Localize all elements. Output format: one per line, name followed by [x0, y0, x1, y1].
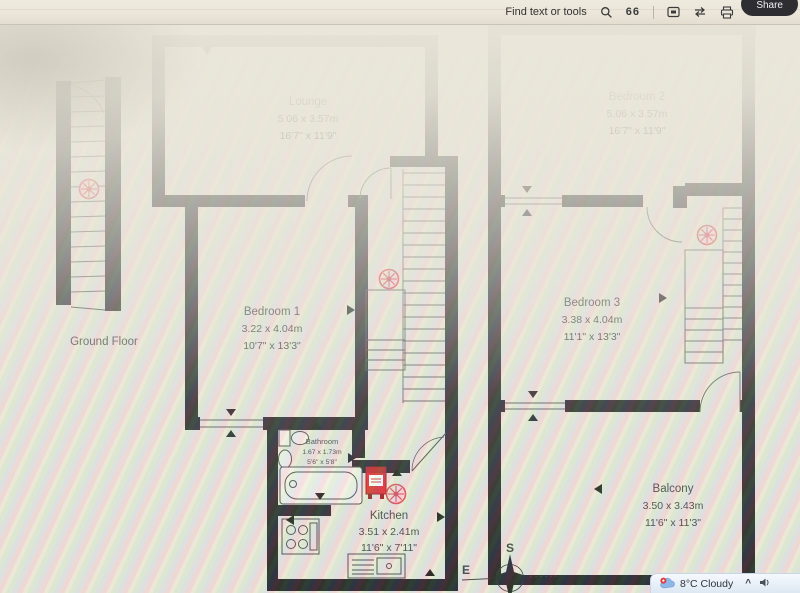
- convert-export-icon[interactable]: [693, 6, 707, 18]
- stairs-lower-flight: [366, 290, 405, 370]
- door-arc-bedroom3: [647, 207, 682, 242]
- smoke-alarm-icon: [698, 226, 717, 245]
- weather-widget[interactable]: 8°C Cloudy: [659, 577, 733, 590]
- room-name: Bedroom 3: [564, 297, 620, 309]
- room-imperial: 16'7" x 11'9": [609, 125, 666, 137]
- toolbar-divider: [653, 6, 654, 19]
- room-metric: 5.06 x 3.57m: [607, 108, 668, 120]
- window: [200, 420, 263, 427]
- search-icon[interactable]: [600, 6, 613, 19]
- room-imperial: 11'6" x 7'11": [361, 542, 417, 554]
- room-imperial: 16'7" x 11'9": [280, 130, 337, 142]
- photographed-screen: Ground Floor: [0, 0, 800, 593]
- window: [505, 198, 565, 409]
- room-metric: 3.22 x 4.04m: [242, 323, 303, 335]
- room-label-kitchen: Kitchen 3.51 x 2.41m 11'6" x 7'11": [359, 510, 420, 554]
- room-label-balcony: Balcony 3.50 x 3.43m 11'6" x 11'3": [643, 483, 704, 529]
- room-label-bathroom: Bathroom 1.67 x 1.73m 5'6" x 5'8": [302, 437, 342, 466]
- room-metric: 3.38 x 4.04m: [562, 314, 623, 326]
- room-metric: 3.51 x 2.41m: [359, 526, 420, 538]
- room-imperial: 11'1" x 13'3": [564, 331, 621, 343]
- toilet-cistern: [279, 430, 290, 446]
- ground-floor-label: Ground Floor: [70, 336, 138, 348]
- boiler-icon: [366, 467, 386, 499]
- room-metric: 5.06 x 3.57m: [278, 113, 339, 125]
- compass-south-label: S: [506, 541, 514, 555]
- smoke-alarm-icon: [387, 485, 406, 504]
- room-imperial: 11'6" x 11'3": [645, 517, 701, 529]
- room-metric: 1.67 x 1.73m: [302, 449, 342, 456]
- room-label-bedroom3: Bedroom 3 3.38 x 4.04m 11'1" x 13'3": [562, 297, 623, 343]
- taskbar: 8°C Cloudy ^: [650, 573, 800, 593]
- print-icon[interactable]: [720, 6, 734, 19]
- page-thumbnails-icon[interactable]: 66: [626, 6, 640, 18]
- room-label-lounge: Lounge 5.06 x 3.57m 16'7" x 11'9": [278, 96, 339, 142]
- basin: [279, 450, 292, 468]
- tray-chevron-icon[interactable]: ^: [745, 578, 751, 589]
- room-name: Balcony: [653, 483, 694, 495]
- find-text-control[interactable]: Find text or tools: [505, 6, 586, 18]
- door-arc-bedroom1: [307, 156, 352, 201]
- floorplan-drawing: Ground Floor: [0, 23, 800, 593]
- weather-label: 8°C Cloudy: [680, 578, 733, 590]
- compass-rose: S E: [462, 541, 558, 593]
- pdf-document: Ground Floor: [0, 23, 800, 593]
- share-button[interactable]: Share: [741, 0, 798, 16]
- room-imperial: 5'6" x 5'8": [307, 459, 337, 466]
- smoke-alarm-icon: [380, 270, 399, 289]
- snapshot-icon[interactable]: [667, 6, 680, 18]
- door-arc-balcony: [700, 372, 740, 412]
- door-kitchen: [412, 433, 446, 471]
- room-label-bedroom1: Bedroom 1 3.22 x 4.04m 10'7" x 13'3": [242, 306, 303, 352]
- room-name: Lounge: [289, 96, 327, 108]
- room-label-bedroom2: Bedroom 2 5.06 x 3.57m 16'7" x 11'9": [607, 91, 668, 137]
- stairs-middle: [403, 169, 445, 403]
- room-imperial: 10'7" x 13'3": [243, 340, 301, 352]
- door-arc-landing: [360, 168, 391, 199]
- pdf-toolbar: Find text or tools 66 Share: [0, 0, 800, 25]
- hob-unit: [282, 519, 319, 554]
- room-name: Bedroom 1: [244, 306, 300, 318]
- weather-cloud-icon: [659, 577, 676, 590]
- smoke-alarm-icon: [80, 180, 99, 199]
- room-name: Bathroom: [306, 437, 339, 446]
- room-name: Kitchen: [370, 510, 408, 522]
- room-name: Bedroom 2: [609, 91, 665, 103]
- compass-east-label: E: [462, 563, 470, 577]
- ground-floor-stairwell: [56, 77, 121, 311]
- room-metric: 3.50 x 3.43m: [643, 500, 704, 512]
- tray-speaker-icon[interactable]: [759, 577, 771, 591]
- door-arc: [72, 85, 104, 113]
